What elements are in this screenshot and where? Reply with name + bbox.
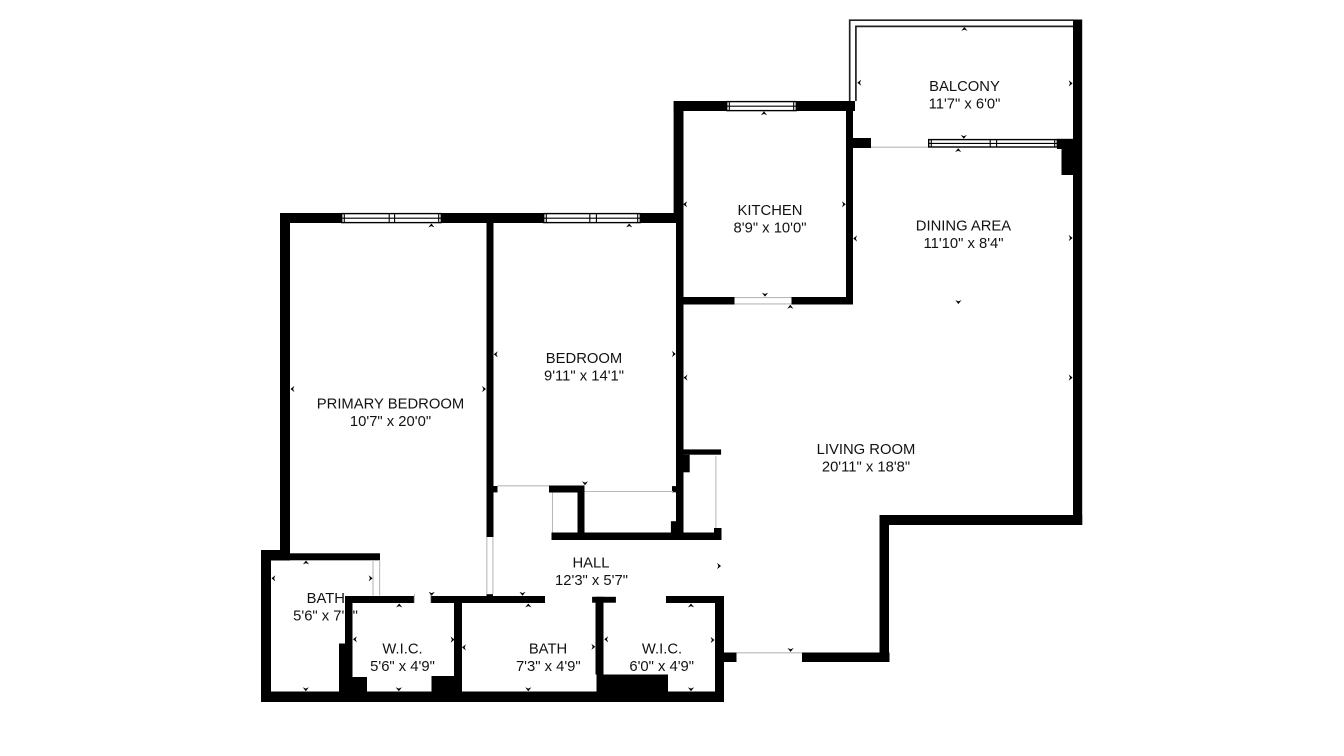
svg-text:DINING AREA: DINING AREA — [916, 218, 1012, 234]
svg-text:6'0" x 4'9": 6'0" x 4'9" — [629, 659, 694, 675]
svg-text:20'11" x 18'8": 20'11" x 18'8" — [822, 459, 910, 475]
svg-text:11'10" x 8'4": 11'10" x 8'4" — [923, 236, 1003, 252]
svg-text:11'7" x 6'0": 11'7" x 6'0" — [929, 96, 1001, 112]
svg-text:9'11" x 14'1": 9'11" x 14'1" — [544, 368, 624, 384]
svg-text:BALCONY: BALCONY — [929, 79, 1000, 95]
svg-text:W.I.C.: W.I.C. — [382, 641, 422, 657]
svg-text:7'3" x 4'9": 7'3" x 4'9" — [516, 659, 581, 675]
svg-text:KITCHEN: KITCHEN — [738, 203, 803, 219]
svg-text:12'3" x 5'7": 12'3" x 5'7" — [555, 573, 628, 589]
svg-text:PRIMARY BEDROOM: PRIMARY BEDROOM — [317, 396, 464, 412]
svg-text:HALL: HALL — [572, 555, 609, 571]
svg-text:BEDROOM: BEDROOM — [546, 351, 622, 367]
svg-text:W.I.C.: W.I.C. — [642, 641, 682, 657]
svg-text:BATH: BATH — [529, 641, 567, 657]
svg-text:5'6" x 4'9": 5'6" x 4'9" — [370, 659, 435, 675]
svg-text:10'7" x 20'0": 10'7" x 20'0" — [350, 414, 431, 430]
svg-text:8'9" x 10'0": 8'9" x 10'0" — [734, 220, 807, 236]
svg-text:BATH: BATH — [307, 591, 345, 607]
svg-text:LIVING ROOM: LIVING ROOM — [817, 442, 916, 458]
